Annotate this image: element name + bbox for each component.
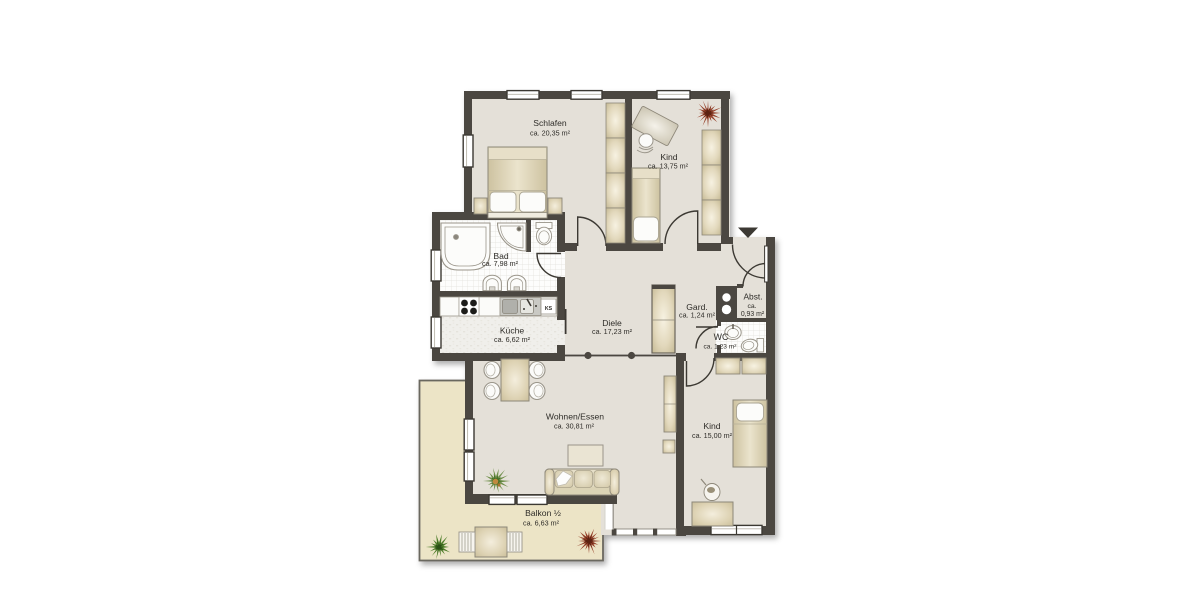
svg-text:ca. 7,98 m²: ca. 7,98 m² [482,259,519,268]
svg-text:ca. 20,35 m²: ca. 20,35 m² [530,129,571,138]
svg-text:WC: WC [714,332,729,342]
svg-text:ca. 30,81 m²: ca. 30,81 m² [554,422,595,431]
svg-text:ca. 17,23 m²: ca. 17,23 m² [592,327,633,336]
svg-text:ca. 13,75 m²: ca. 13,75 m² [648,162,689,171]
svg-text:ca. 6,62 m²: ca. 6,62 m² [494,335,531,344]
svg-text:Schlafen: Schlafen [533,118,567,128]
svg-text:Abst.: Abst. [743,292,762,302]
svg-text:ca. 1,24 m²: ca. 1,24 m² [679,311,716,320]
svg-text:ca.: ca. [747,303,756,310]
svg-text:ca. 1,23 m²: ca. 1,23 m² [704,343,738,350]
svg-text:Wohnen/Essen: Wohnen/Essen [546,412,604,422]
svg-text:Balkon ½: Balkon ½ [525,508,561,518]
svg-text:KS: KS [545,306,553,312]
svg-text:Kind: Kind [660,152,677,162]
svg-text:Kind: Kind [703,421,720,431]
svg-text:0,93 m²: 0,93 m² [741,311,765,318]
svg-text:ca. 15,00 m²: ca. 15,00 m² [692,431,733,440]
svg-text:ca. 6,63 m²: ca. 6,63 m² [523,519,560,528]
svg-text:Küche: Küche [500,326,525,336]
